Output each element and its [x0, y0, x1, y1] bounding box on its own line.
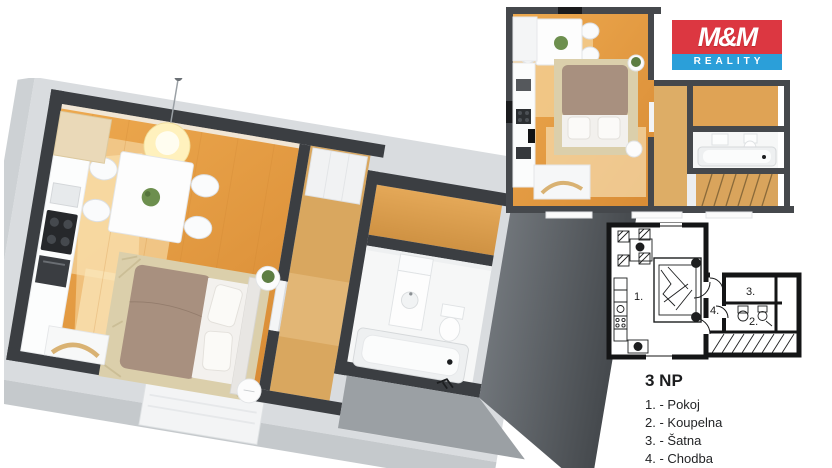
- tall-cabinet: [53, 111, 111, 163]
- legend-item-pokoj: 1. - Pokoj: [645, 398, 722, 412]
- mm-reality-logo: M&M REALITY: [672, 20, 782, 70]
- wardrobe: [305, 148, 367, 204]
- room-legend: 1. - Pokoj 2. - Koupelna 3. - Šatna 4. -…: [645, 398, 722, 468]
- tv-corridor-floor: [654, 86, 687, 206]
- tv-stairs-floor: [687, 174, 778, 206]
- tv-doormats: [546, 212, 752, 218]
- window-slot: [506, 101, 513, 123]
- tv-bed: [554, 55, 644, 157]
- legend-item-koupelna: 2. - Koupelna: [645, 416, 722, 430]
- kitchen-sink: [50, 183, 81, 208]
- legend-item-satna: 3. - Šatna: [645, 434, 722, 448]
- schematic-2d-plan: 1. 4. 3. 2.: [606, 222, 804, 362]
- tv-closet-floor: [693, 86, 778, 126]
- pillow: [202, 331, 233, 372]
- cooktop: [40, 210, 78, 255]
- floorplan-presentation: M&M REALITY: [0, 0, 832, 468]
- oven: [35, 255, 70, 287]
- window-slot: [558, 7, 582, 14]
- logo-title: M&M: [672, 20, 782, 54]
- tv-duvet: [562, 65, 628, 117]
- floor-title: 3 NP: [645, 371, 683, 391]
- room-label-pokoj: 1.: [634, 291, 643, 303]
- room-label-koupelna: 2.: [749, 316, 758, 328]
- room-label-satna: 3.: [746, 286, 755, 298]
- room-label-chodba: 4.: [710, 305, 719, 317]
- legend-item-chodba: 4. - Chodba: [645, 452, 722, 466]
- logo-subtitle: REALITY: [672, 54, 782, 70]
- corridor-floor-light: [279, 273, 350, 347]
